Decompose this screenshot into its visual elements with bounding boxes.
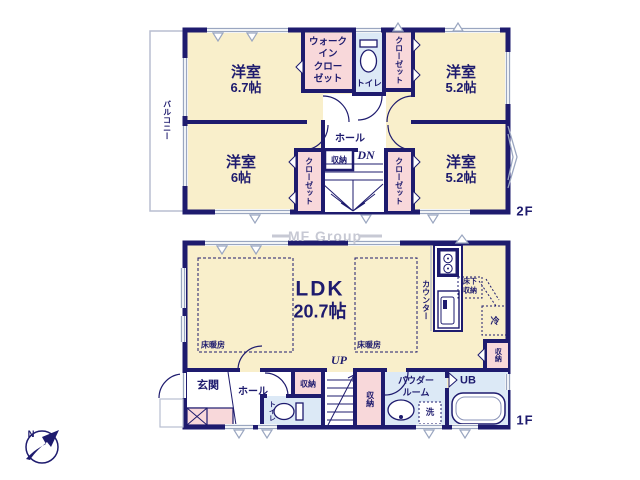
balcony-label: バルコニー bbox=[162, 100, 171, 140]
bedroom-top-right-name: 洋室 bbox=[445, 64, 476, 81]
bedroom-top-left-label: 洋室 6.7帖 bbox=[230, 64, 261, 96]
washer-label: 洗 bbox=[426, 408, 435, 418]
down-label: DN bbox=[357, 149, 374, 163]
powder-room-label: パウダー ルーム bbox=[398, 375, 434, 398]
closet-bottom-left-label: クローゼット bbox=[304, 157, 313, 205]
compass-north-label: N bbox=[28, 429, 35, 440]
bedroom-bottom-left-name: 洋室 bbox=[226, 154, 256, 171]
wic-line2: イン bbox=[309, 49, 347, 61]
floor2-label: 2F bbox=[516, 205, 533, 220]
wic-line3: クロー bbox=[309, 61, 347, 73]
ldk-label: LDK 20.7帖 bbox=[293, 278, 346, 323]
bedroom-bottom-right-name: 洋室 bbox=[445, 154, 476, 171]
bedroom-top-left-name: 洋室 bbox=[230, 64, 261, 81]
storage-kitchen-label: 収納 bbox=[493, 348, 502, 362]
bedroom-top-right-size: 5.2帖 bbox=[445, 81, 476, 96]
underfloor-line2: 収納 bbox=[463, 287, 477, 296]
floor-heating-left-label: 床暖房 bbox=[201, 340, 225, 349]
wic-line4: ゼット bbox=[309, 73, 347, 85]
storage-2f-label: 収納 bbox=[331, 155, 347, 164]
powder-line2: ルーム bbox=[398, 387, 434, 399]
toilet-2f-label: トイレ bbox=[356, 79, 382, 89]
unit-bath-label: UB bbox=[460, 375, 476, 388]
toilet-icon-2f bbox=[360, 40, 377, 72]
bedroom-bottom-right-label: 洋室 5.2帖 bbox=[445, 154, 476, 186]
porch bbox=[160, 399, 183, 427]
entrance-label: 玄関 bbox=[197, 380, 219, 393]
up-label: UP bbox=[331, 354, 347, 368]
ldk-name: LDK bbox=[293, 278, 346, 302]
basin-icon bbox=[388, 400, 414, 420]
storage-hall-label: 収納 bbox=[300, 379, 316, 388]
underfloor-line1: 床下 bbox=[463, 278, 477, 287]
bedroom-top-right-label: 洋室 5.2帖 bbox=[445, 64, 476, 96]
watermark: MF Group bbox=[288, 228, 362, 244]
stove-icon bbox=[437, 248, 459, 277]
hall-2f-label: ホール bbox=[335, 133, 365, 145]
bedroom-bottom-left-label: 洋室 6帖 bbox=[226, 154, 256, 186]
powder-line1: パウダー bbox=[398, 375, 434, 387]
fridge-label: 冷 bbox=[490, 316, 499, 326]
floor1-label: 1F bbox=[516, 414, 533, 429]
bedroom-bottom-right-size: 5.2帖 bbox=[445, 171, 476, 186]
bedroom-top-left-size: 6.7帖 bbox=[230, 81, 261, 96]
underfloor-storage-label: 床下 収納 bbox=[463, 278, 477, 296]
counter-label: カウンター bbox=[421, 280, 430, 320]
bathtub-icon bbox=[452, 393, 505, 424]
compass-icon: N bbox=[26, 429, 59, 463]
closet-bottom-right-label: クローゼット bbox=[394, 157, 403, 205]
bedroom-bottom-left-size: 6帖 bbox=[226, 171, 256, 186]
shoe-cabinet bbox=[187, 408, 233, 425]
floor1-plan bbox=[159, 235, 511, 438]
sink-icon bbox=[438, 291, 459, 328]
hall-1f-label: ホール bbox=[238, 386, 268, 398]
ldk-size: 20.7帖 bbox=[293, 302, 346, 323]
walk-in-closet-label: ウォーク イン クロー ゼット bbox=[309, 36, 347, 85]
closet-top-right-label: クローゼット bbox=[394, 36, 403, 84]
storage-corridor-label: 収納 bbox=[365, 391, 374, 407]
toilet-1f-label: トイレ bbox=[267, 401, 276, 422]
floor-heating-right-label: 床暖房 bbox=[357, 340, 381, 349]
floorplan-canvas: N バルコニー 洋室 6.7帖 ウォーク イン クロー ゼット トイレ クローゼ… bbox=[0, 0, 640, 480]
wic-line1: ウォーク bbox=[309, 36, 347, 48]
toilet-icon-1f bbox=[274, 403, 303, 420]
